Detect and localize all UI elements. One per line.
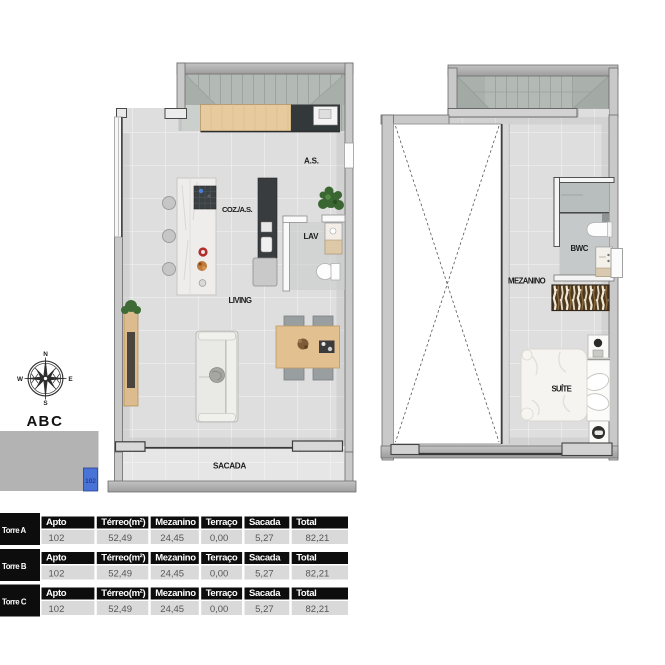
svg-text:52,49: 52,49	[108, 533, 132, 544]
svg-text:BWC: BWC	[571, 244, 589, 253]
svg-text:52,49: 52,49	[108, 604, 132, 615]
svg-text:SUÍTE: SUÍTE	[552, 384, 572, 393]
svg-text:Térreo(m²): Térreo(m²)	[101, 588, 145, 599]
svg-text:102: 102	[49, 533, 65, 544]
svg-text:Terraço: Terraço	[206, 552, 238, 563]
svg-text:W: W	[17, 376, 24, 383]
svg-text:Apto: Apto	[46, 517, 67, 528]
svg-text:0,00: 0,00	[210, 604, 229, 615]
svg-text:102: 102	[49, 604, 65, 615]
svg-text:102: 102	[85, 478, 96, 485]
svg-text:A.S.: A.S.	[304, 156, 319, 165]
svg-text:82,21: 82,21	[306, 533, 330, 544]
svg-text:MEZANINO: MEZANINO	[508, 277, 546, 286]
svg-text:Mezanino: Mezanino	[155, 588, 196, 599]
svg-text:24,45: 24,45	[160, 569, 184, 580]
svg-text:Total: Total	[296, 517, 316, 528]
svg-text:S: S	[43, 400, 48, 407]
svg-text:0,00: 0,00	[210, 533, 229, 544]
svg-text:LIVING: LIVING	[229, 296, 252, 305]
svg-text:5,27: 5,27	[255, 569, 274, 580]
svg-text:Torre A: Torre A	[2, 526, 27, 535]
svg-text:0,00: 0,00	[210, 569, 229, 580]
svg-text:82,21: 82,21	[306, 569, 330, 580]
svg-text:Térreo(m²): Térreo(m²)	[101, 517, 145, 528]
svg-text:Sacada: Sacada	[249, 552, 281, 563]
svg-text:Sacada: Sacada	[249, 588, 281, 599]
svg-text:82,21: 82,21	[306, 604, 330, 615]
svg-text:Apto: Apto	[46, 588, 67, 599]
svg-text:Térreo(m²): Térreo(m²)	[101, 552, 145, 563]
svg-text:E: E	[68, 376, 73, 383]
svg-text:Terraço: Terraço	[206, 588, 238, 599]
svg-text:24,45: 24,45	[160, 533, 184, 544]
svg-text:Mezanino: Mezanino	[155, 517, 196, 528]
svg-text:24,45: 24,45	[160, 604, 184, 615]
svg-text:Total: Total	[296, 588, 316, 599]
svg-text:Total: Total	[296, 552, 316, 563]
svg-text:Sacada: Sacada	[249, 517, 281, 528]
svg-text:SACADA: SACADA	[213, 461, 246, 470]
svg-text:N: N	[43, 351, 48, 358]
svg-text:Torre B: Torre B	[2, 562, 27, 571]
svg-text:Terraço: Terraço	[206, 517, 238, 528]
svg-text:5,27: 5,27	[255, 533, 274, 544]
svg-text:5,27: 5,27	[255, 604, 274, 615]
svg-text:A B C: A B C	[27, 413, 63, 430]
svg-text:COZ./A.S.: COZ./A.S.	[222, 205, 253, 214]
svg-text:LAV: LAV	[304, 232, 320, 241]
svg-text:Mezanino: Mezanino	[155, 552, 196, 563]
svg-text:Torre C: Torre C	[2, 597, 27, 606]
svg-text:102: 102	[49, 569, 65, 580]
svg-text:Apto: Apto	[46, 552, 67, 563]
svg-text:52,49: 52,49	[108, 569, 132, 580]
